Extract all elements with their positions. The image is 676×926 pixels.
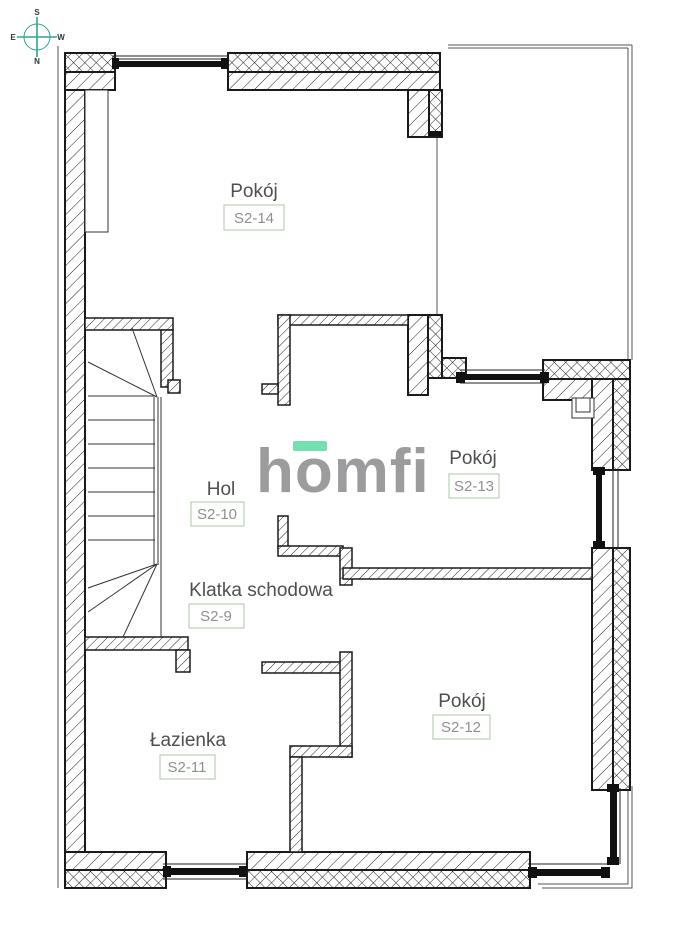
room-name-s2-14: Pokój xyxy=(230,181,278,202)
room-code-s2-14: S2-14 xyxy=(234,210,274,227)
room-code-s2-13: S2-13 xyxy=(454,478,494,495)
room-code-s2-12: S2-12 xyxy=(441,719,481,736)
homfi-logo: homfi xyxy=(256,437,430,506)
room-name-s2-12: Pokój xyxy=(438,691,486,712)
homfi-logo-accent-bar xyxy=(293,441,327,451)
compass-left-label: E xyxy=(10,33,16,42)
room-code-s2-9: S2-9 xyxy=(200,608,232,625)
compass-bottom-label: N xyxy=(34,57,40,66)
room-code-s2-11: S2-11 xyxy=(168,759,207,776)
compass-right-label: W xyxy=(57,33,65,42)
floor-plan-drawing: S E W N homfi Pokój S2-14 Pokój S2-13 Ho… xyxy=(0,0,676,926)
room-code-s2-10: S2-10 xyxy=(197,506,237,523)
room-name-s2-13: Pokój xyxy=(449,448,497,469)
staircase xyxy=(88,328,161,637)
room-name-s2-10: Hol xyxy=(207,479,236,500)
room-name-s2-11: Łazienka xyxy=(150,730,226,751)
floor-plan-page: S E W N homfi Pokój S2-14 Pokój S2-13 Ho… xyxy=(0,0,676,926)
compass-top-label: S xyxy=(34,8,40,17)
room-name-s2-9: Klatka schodowa xyxy=(189,580,333,601)
compass-icon: S E W N xyxy=(10,8,65,66)
homfi-logo-text: homfi xyxy=(256,437,430,506)
